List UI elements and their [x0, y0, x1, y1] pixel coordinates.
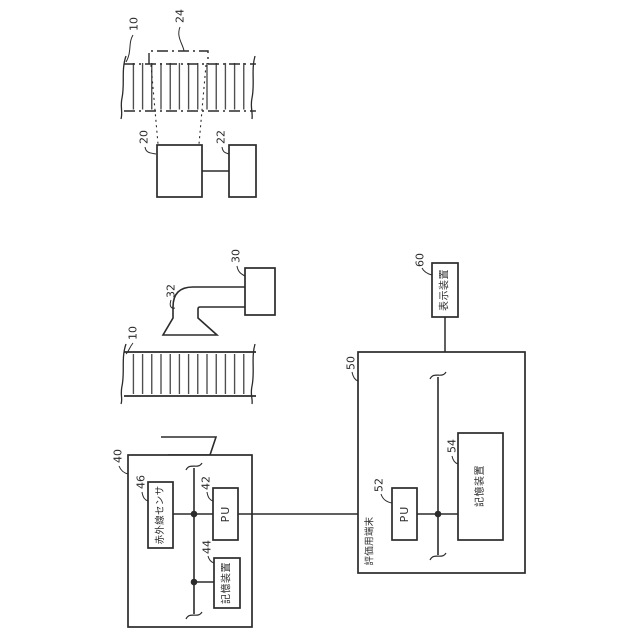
patent-figure: 10 24 20 22 30 32 10 赤外線センサ PU 記憶装置 [0, 0, 640, 640]
terminal-title: 評価用端末 [364, 516, 376, 565]
sensor-unit-leader [119, 466, 128, 474]
terminal-pu-text: PU [398, 506, 411, 523]
sensor-unit: 赤外線センサ PU 記憶装置 40 46 42 44 [112, 437, 359, 627]
road-top-label: 10 [128, 17, 141, 31]
road-hatching-middle [127, 354, 252, 394]
capture-region-label: 24 [174, 9, 187, 23]
display-label: 60 [414, 253, 427, 267]
road-hatching-top [127, 63, 252, 110]
display-leader [422, 268, 432, 275]
camera-controller-label: 22 [215, 130, 228, 144]
sensor-lens-hood [161, 437, 216, 455]
ir-sensor-text: 赤外線センサ [154, 486, 166, 545]
lamp-leader [237, 266, 245, 276]
ir-sensor-label: 46 [135, 475, 148, 489]
terminal-leader [352, 372, 358, 381]
road-break-left-2 [121, 344, 126, 404]
diagram-canvas: 10 24 20 22 30 32 10 赤外線センサ PU 記憶装置 [0, 0, 640, 640]
sensor-storage-text: 記憶装置 [220, 562, 233, 604]
road-top-leader [126, 35, 133, 62]
lamp-box [245, 268, 275, 315]
terminal-pu-label: 52 [373, 478, 386, 492]
bus-junction-dot-2 [191, 579, 198, 586]
sensor-unit-label: 40 [112, 449, 125, 463]
sensor-pu-label: 42 [200, 476, 213, 490]
lamp-assembly: 30 32 10 [121, 249, 275, 404]
camera-controller-box [229, 145, 256, 197]
road-middle-label: 10 [127, 326, 140, 340]
capture-region-leader [179, 27, 184, 51]
terminal-bus-junction-dot [435, 511, 442, 518]
camera-leader [145, 147, 156, 154]
display-text: 表示装置 [438, 269, 451, 311]
evaluation-terminal: 評価用端末 PU 記憶装置 50 52 54 [345, 317, 526, 573]
terminal-label: 50 [345, 356, 358, 370]
display-device: 表示装置 60 [414, 253, 459, 317]
road-break-left [121, 56, 126, 119]
terminal-storage-label: 54 [446, 439, 459, 453]
sensor-storage-label: 44 [201, 540, 214, 554]
capture-region-outline [149, 51, 208, 64]
sensor-pu-text: PU [219, 506, 232, 523]
bus-junction-dot-1 [191, 511, 198, 518]
lamp-arm-label: 32 [165, 284, 178, 298]
terminal-storage-text: 記憶装置 [473, 465, 486, 507]
camera-box [157, 145, 202, 197]
camera-capture-assembly: 10 24 20 22 [121, 9, 256, 197]
lamp-label: 30 [230, 249, 243, 263]
camera-controller-leader [222, 147, 229, 154]
camera-label: 20 [138, 130, 151, 144]
